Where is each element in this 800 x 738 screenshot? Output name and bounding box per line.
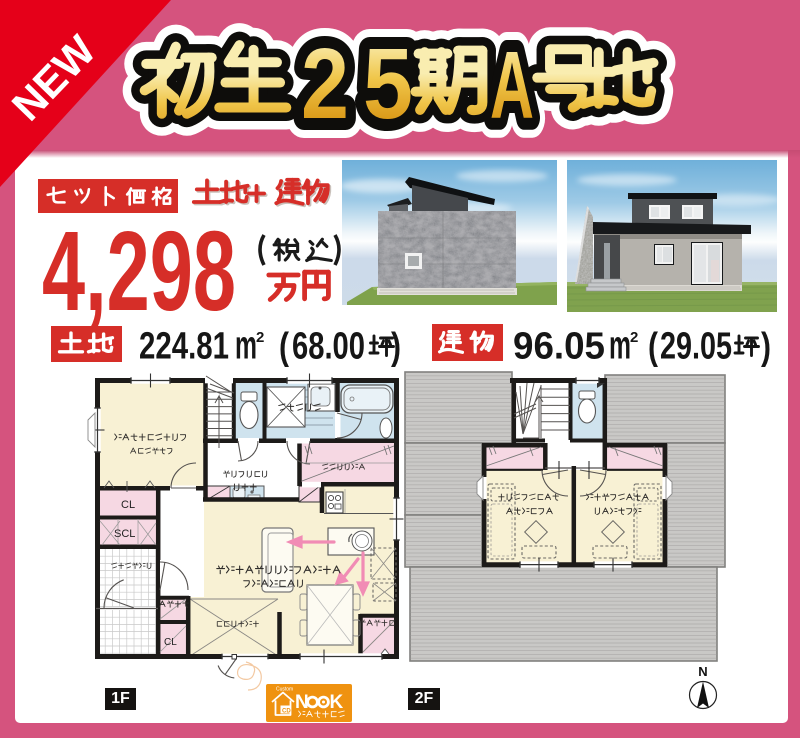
svg-text:K: K (330, 692, 344, 713)
svg-text:N: N (698, 664, 707, 679)
svg-text:CL: CL (164, 637, 177, 648)
svg-text:Custom: Custom (276, 687, 293, 693)
svg-text:CL: CL (121, 499, 135, 511)
svg-text:CD: CD (282, 709, 291, 715)
svg-text:SCL: SCL (114, 528, 135, 540)
